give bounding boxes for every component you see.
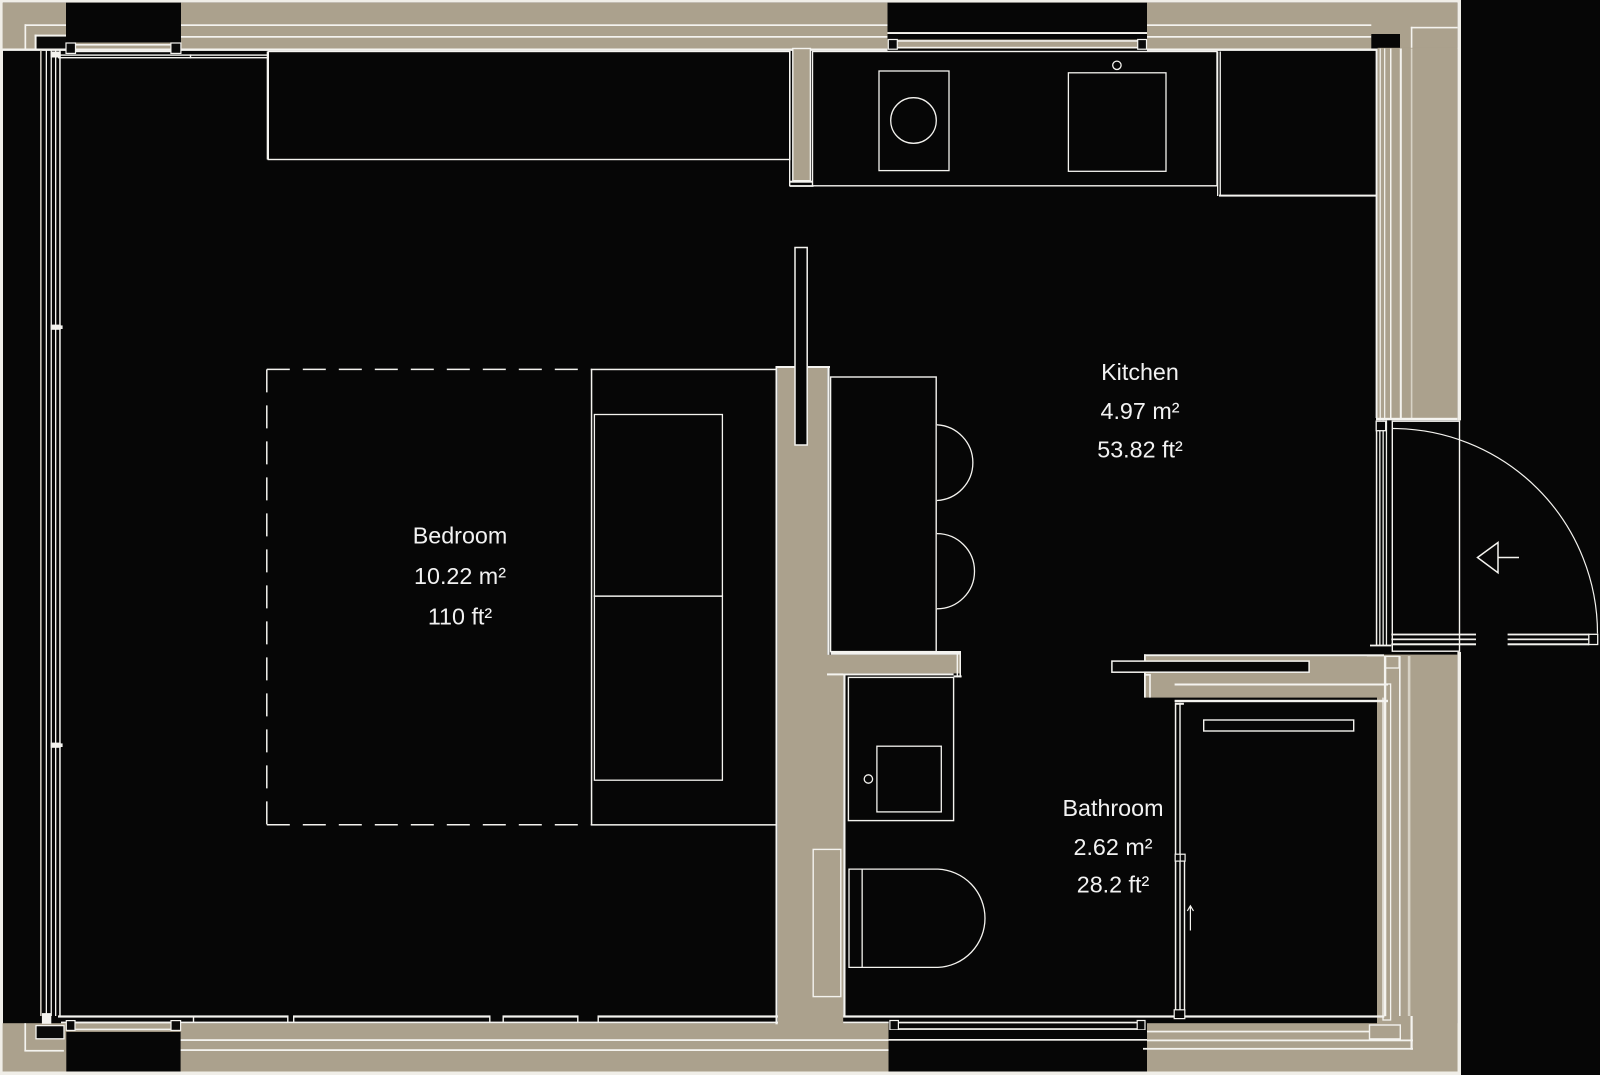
svg-text:110 ft²: 110 ft²: [428, 604, 493, 630]
svg-text:10.22 m²: 10.22 m²: [414, 563, 506, 589]
svg-text:Bathroom: Bathroom: [1062, 795, 1163, 821]
svg-text:53.82 ft²: 53.82 ft²: [1097, 437, 1183, 463]
svg-text:4.97 m²: 4.97 m²: [1101, 398, 1180, 424]
svg-text:28.2 ft²: 28.2 ft²: [1077, 872, 1150, 898]
svg-text:Bedroom: Bedroom: [413, 523, 508, 549]
svg-text:2.62 m²: 2.62 m²: [1074, 834, 1153, 860]
svg-text:Kitchen: Kitchen: [1101, 359, 1179, 385]
